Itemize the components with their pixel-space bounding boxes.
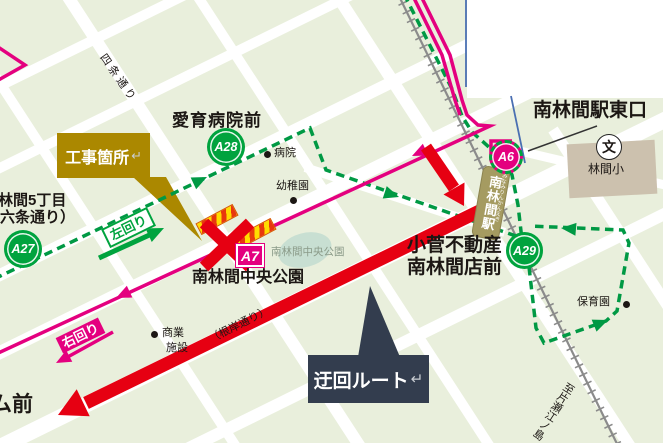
stop-mae-text: 前: [12, 393, 33, 416]
district-line2: 六条通り）: [0, 210, 75, 227]
badge-a6: A6: [489, 140, 523, 174]
nursery-dot: [623, 301, 630, 308]
street-yojo: 四条通り: [97, 52, 139, 105]
elementary-school-label: 林間小: [588, 163, 624, 176]
poi-commerce-line2: 施設: [166, 342, 188, 354]
district-line1: 林間5丁目: [0, 193, 66, 210]
poi-commerce-line1: 商業: [162, 327, 184, 339]
poi-nursery: 保育園: [577, 296, 610, 308]
stop-kosuge-line2: 南林間店前: [407, 258, 502, 279]
badge-a27: A27: [4, 230, 42, 268]
badge-a29: A29: [506, 232, 543, 269]
park-name-small: 南林間中央公園: [271, 247, 345, 259]
construction-callout-label: 工事箇所: [65, 144, 129, 168]
poi-hospital: 病院: [274, 147, 296, 159]
badge-a7: A7: [236, 244, 264, 267]
stop-central-park: 南林間中央公園: [192, 269, 304, 287]
stop-kosuge-line1: 小菅不動産: [407, 236, 502, 257]
stop-aiiku-hospital: 愛育病院前: [172, 112, 262, 131]
return-mark: ↵: [411, 370, 424, 388]
detour-callout-label: 迂回ルート: [314, 366, 409, 393]
map-edge-blank: [467, 0, 663, 98]
stop-mae: ム前: [0, 393, 33, 416]
toward-katase: 至片瀬江ノ島: [495, 380, 576, 443]
construction-callout: 工事箇所↵: [57, 133, 150, 178]
school-symbol-icon: 文: [596, 134, 622, 160]
detour-callout: 迂回ルート↵: [308, 355, 429, 403]
kindergarten-dot: [290, 197, 297, 204]
hospital-dot: [264, 151, 271, 158]
poi-kindergarten: 幼稚園: [276, 180, 309, 192]
detour-map: 文 林間小 みなみりんかんえき 南林間駅 A27 A28 A29 A6 A7 愛…: [0, 0, 663, 443]
return-mark: ↵: [131, 148, 142, 164]
commerce-dot: [151, 331, 158, 338]
badge-a28: A28: [207, 128, 245, 166]
stop-station-east: 南林間駅東口: [533, 101, 647, 122]
stop-mae-partial: ム: [0, 393, 12, 416]
